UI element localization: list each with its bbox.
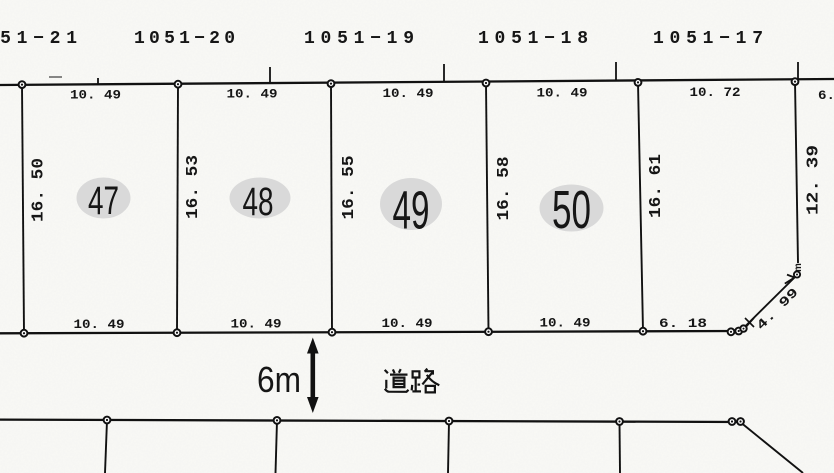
svg-text:6. 18: 6. 18 bbox=[659, 316, 707, 331]
svg-text:50: 50 bbox=[552, 180, 591, 240]
svg-text:10. 49: 10. 49 bbox=[70, 88, 121, 103]
svg-text:1051−18: 1051−18 bbox=[478, 29, 592, 49]
svg-text:10. 49: 10. 49 bbox=[231, 317, 282, 332]
svg-text:1051−17: 1051−17 bbox=[653, 29, 767, 49]
svg-text:12. 39: 12. 39 bbox=[804, 145, 823, 215]
svg-text:1051−21: 1051−21 bbox=[0, 29, 81, 49]
svg-text:m: m bbox=[793, 263, 804, 272]
svg-text:10. 49: 10. 49 bbox=[382, 316, 433, 331]
svg-text:1051−20: 1051−20 bbox=[134, 29, 239, 49]
svg-text:16. 61: 16. 61 bbox=[646, 154, 665, 218]
svg-text:6m: 6m bbox=[257, 359, 301, 400]
svg-text:10. 49: 10. 49 bbox=[227, 87, 278, 102]
svg-text:48: 48 bbox=[243, 180, 274, 224]
svg-text:10. 72: 10. 72 bbox=[690, 85, 741, 100]
svg-text:47: 47 bbox=[88, 179, 119, 223]
svg-text:1051−19: 1051−19 bbox=[304, 29, 418, 49]
svg-text:49: 49 bbox=[393, 181, 430, 241]
svg-text:16. 55: 16. 55 bbox=[339, 155, 358, 219]
svg-text:16. 50: 16. 50 bbox=[29, 158, 48, 222]
svg-text:10. 49: 10. 49 bbox=[74, 317, 125, 332]
svg-text:10. 49: 10. 49 bbox=[540, 316, 591, 331]
svg-text:6.: 6. bbox=[818, 88, 834, 103]
svg-text:10. 49: 10. 49 bbox=[383, 86, 434, 101]
svg-text:16. 53: 16. 53 bbox=[183, 155, 202, 219]
svg-text:16. 58: 16. 58 bbox=[494, 156, 513, 220]
svg-text:10. 49: 10. 49 bbox=[537, 86, 588, 101]
